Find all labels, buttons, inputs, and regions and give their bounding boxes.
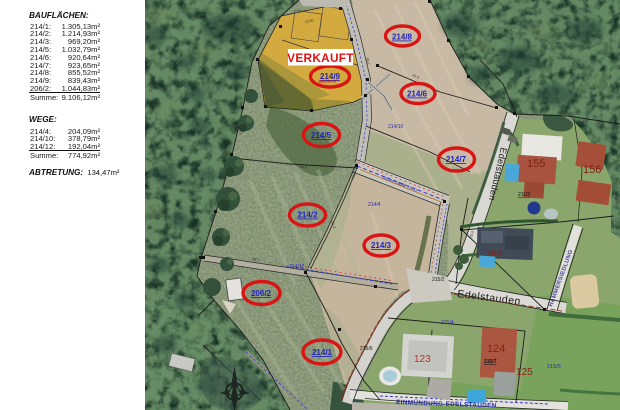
svg-text:214/2: 214/2 xyxy=(297,211,318,220)
svg-text:125: 125 xyxy=(516,367,533,378)
svg-text:214/3: 214/3 xyxy=(371,241,392,250)
svg-text:215/6: 215/6 xyxy=(360,346,373,352)
svg-text:155: 155 xyxy=(527,158,545,170)
svg-text:214/1: 214/1 xyxy=(312,348,333,357)
svg-text:123: 123 xyxy=(414,354,431,365)
svg-text:214/7: 214/7 xyxy=(446,155,467,164)
svg-text:156: 156 xyxy=(583,164,601,176)
svg-text:214/12: 214/12 xyxy=(289,264,305,270)
svg-text:124: 124 xyxy=(487,343,505,355)
svg-text:214/6: 214/6 xyxy=(407,90,428,99)
svg-text:214/10: 214/10 xyxy=(388,124,404,130)
svg-text:215/7: 215/7 xyxy=(484,359,497,365)
svg-text:206/2: 206/2 xyxy=(251,289,272,298)
svg-text:VERKAUFT: VERKAUFT xyxy=(287,51,354,65)
svg-text:214/5: 214/5 xyxy=(311,131,332,140)
svg-text:211/2: 211/2 xyxy=(518,192,530,198)
svg-text:214/8: 214/8 xyxy=(392,33,413,42)
svg-text:215/2: 215/2 xyxy=(432,277,445,283)
svg-text:215/5: 215/5 xyxy=(547,364,561,370)
svg-text:215/4: 215/4 xyxy=(441,320,454,326)
svg-text:214/4: 214/4 xyxy=(368,202,381,208)
svg-text:839,43 m²: 839,43 m² xyxy=(319,79,338,84)
svg-text:44,6: 44,6 xyxy=(300,165,307,169)
svg-text:212/4: 212/4 xyxy=(487,251,503,257)
